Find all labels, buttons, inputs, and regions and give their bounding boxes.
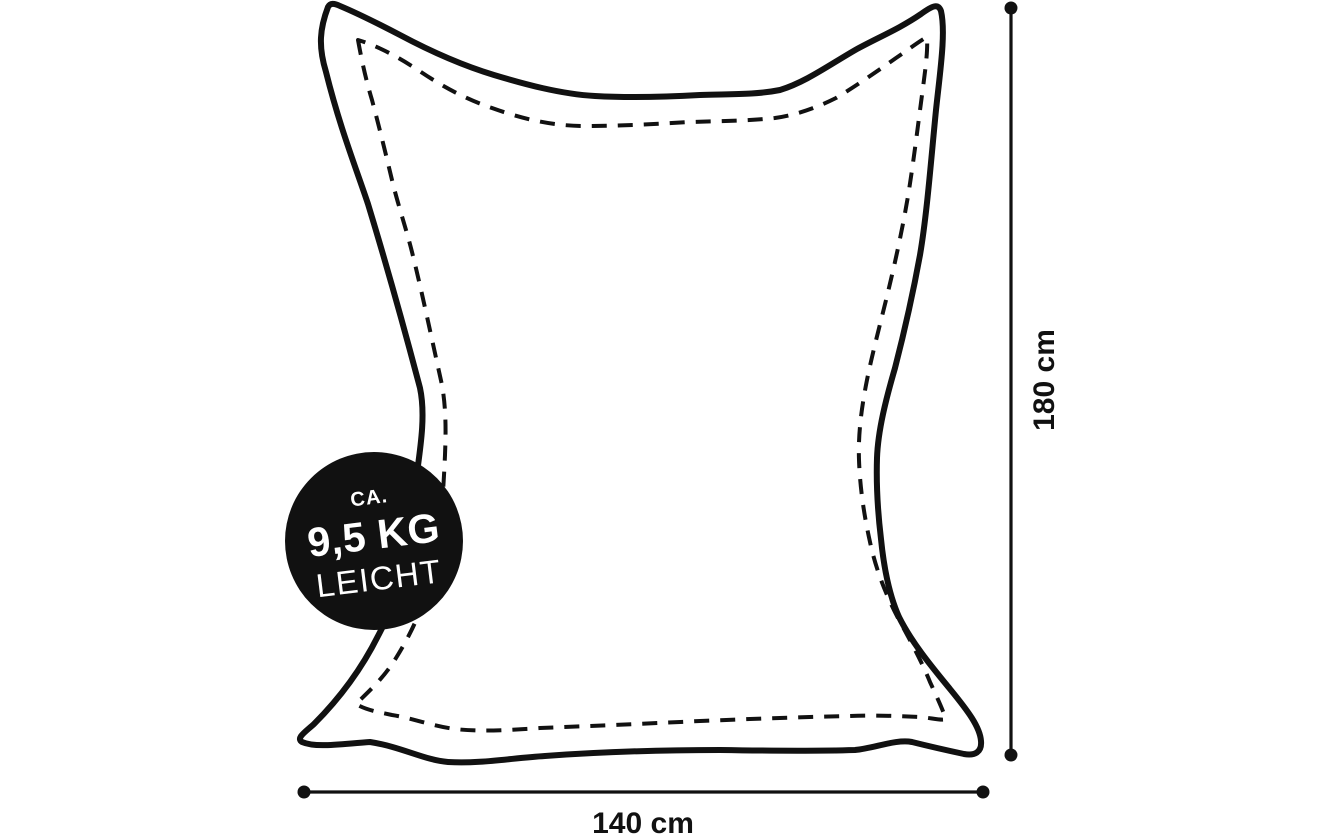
width-line-left-dot: [298, 786, 311, 799]
width-line-right-dot: [977, 786, 990, 799]
height-line-bottom-dot: [1005, 749, 1018, 762]
height-dimension-label: 180 cm: [1029, 320, 1061, 440]
width-dimension-line: [298, 786, 990, 799]
beanbag-dimension-diagram: CA. 9,5 KG LEICHT 180 cm 140 cm: [0, 0, 1334, 840]
weight-badge: CA. 9,5 KG LEICHT: [285, 452, 463, 630]
width-dimension-label: 140 cm: [583, 808, 703, 840]
height-line-top-dot: [1005, 2, 1018, 15]
beanbag-seam-dashed-line: [356, 37, 946, 731]
height-dimension-line: [1005, 2, 1018, 762]
diagram-canvas: [0, 0, 1334, 840]
weight-badge-text: CA. 9,5 KG LEICHT: [302, 480, 447, 602]
